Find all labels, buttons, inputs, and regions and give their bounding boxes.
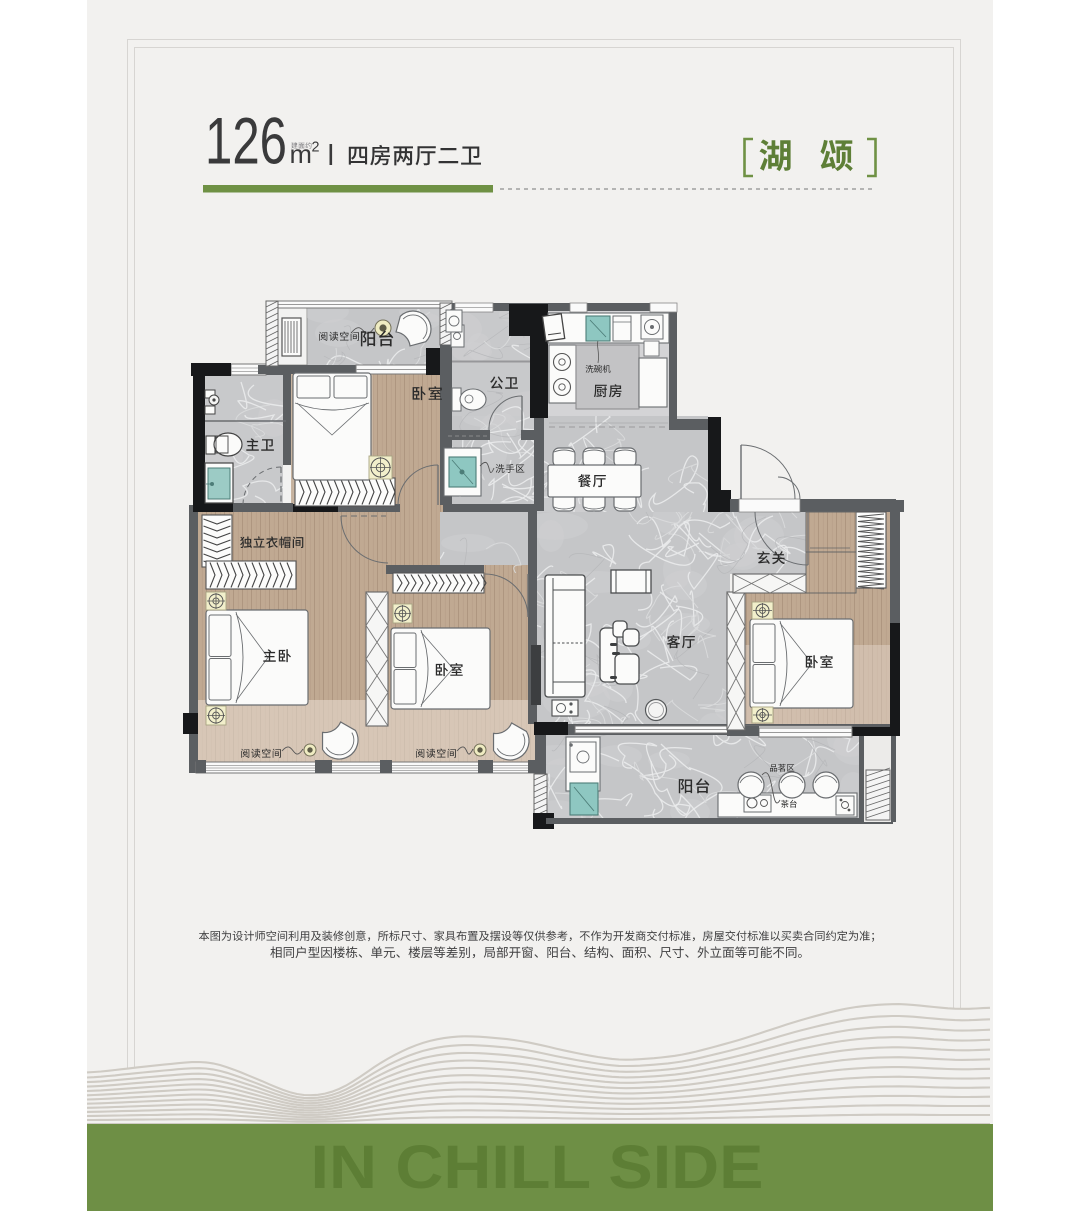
svg-text:126: 126: [205, 104, 287, 178]
svg-text:IN CHILL SIDE: IN CHILL SIDE: [311, 1133, 764, 1201]
svg-text:2: 2: [312, 139, 320, 156]
svg-text:m: m: [290, 139, 313, 169]
